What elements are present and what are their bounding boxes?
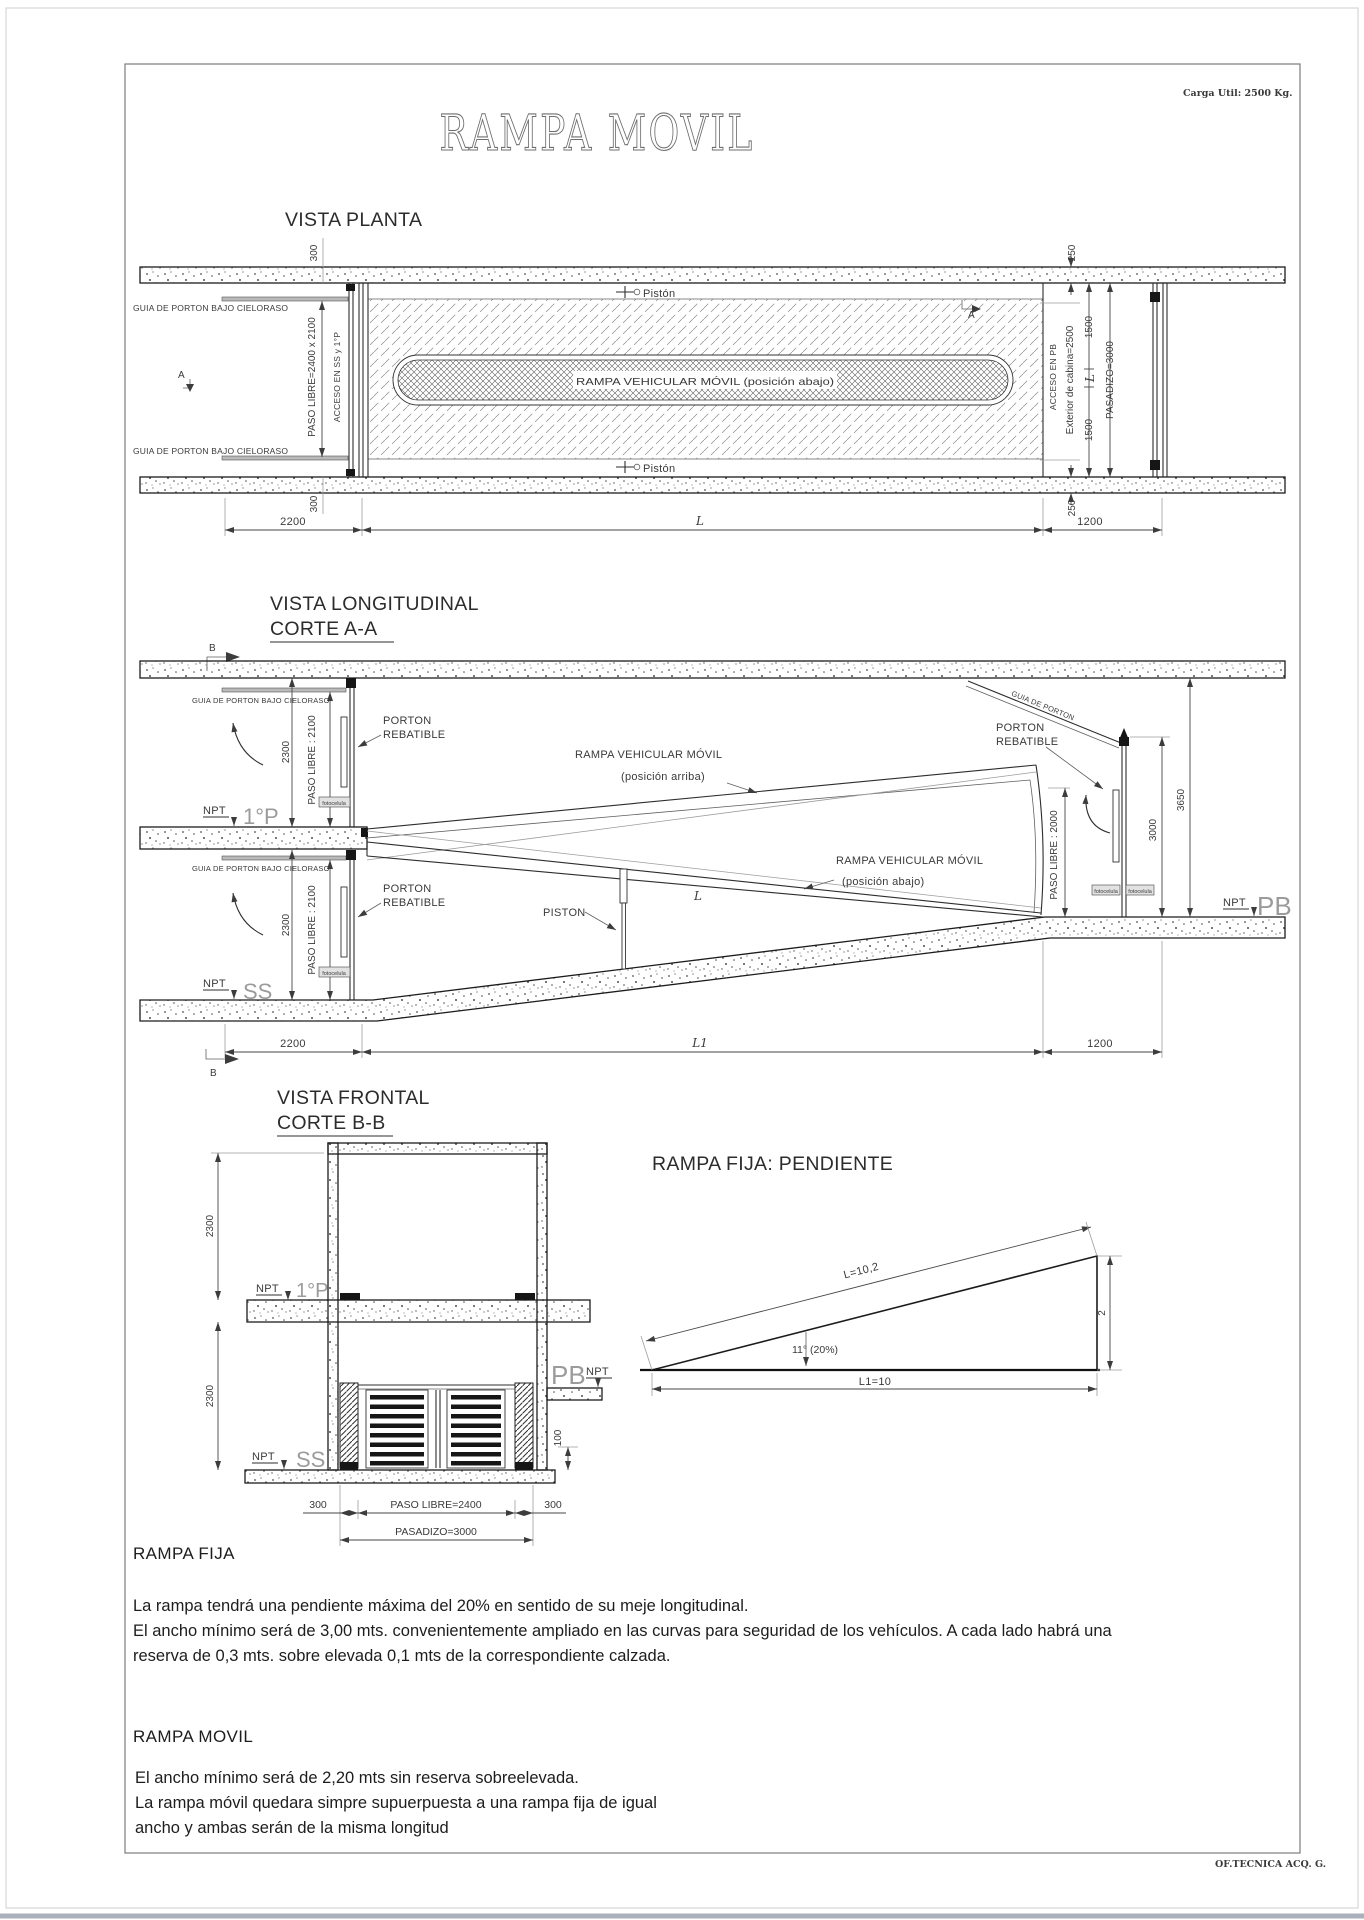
long-ramp-down-l2: (posición abajo) <box>842 876 924 888</box>
notes-movil-heading: RAMPA MOVIL <box>133 1727 253 1746</box>
long-ceiling-slab <box>140 661 1285 678</box>
plan-bottom-wall <box>140 477 1285 493</box>
long-swing-arrow-ss <box>233 893 263 935</box>
long-npt-1p: NPT <box>203 805 226 817</box>
longitudinal-title: VISTA LONGITUDINAL <box>270 593 479 615</box>
long-door-leaf-1p <box>341 717 347 787</box>
long-guia-1p-label: GUIA DE PORTON BAJO CIELORASO <box>192 696 330 705</box>
frontal-1p-slab <box>247 1300 590 1322</box>
frontal-level-ss: SS <box>296 1447 325 1472</box>
pendiente-title: RAMPA FIJA: PENDIENTE <box>652 1153 893 1175</box>
frontal-pasadizo: PASADIZO=3000 <box>395 1526 477 1538</box>
long-porton-1p-l2: REBATIBLE <box>383 729 445 741</box>
notes-fija-line-1: La rampa tendrá una pendiente máxima del… <box>133 1597 749 1615</box>
plan-dim-1500-top: 1500 <box>1084 315 1095 338</box>
plan-ramp-label: RAMPA VEHICULAR MÓVIL (posición abajo) <box>576 375 834 388</box>
long-mobile-ramp-down <box>367 842 1043 917</box>
long-dim-2200: 2200 <box>280 1038 306 1050</box>
main-title: RAMPA MOVIL <box>440 104 755 162</box>
plan-guide-rail-top <box>222 297 348 301</box>
long-porton-1p-l1: PORTON <box>383 715 431 727</box>
long-door-leaf-ss <box>341 887 347 957</box>
long-dim-l-ramp: L <box>693 889 702 903</box>
plan-title: VISTA PLANTA <box>285 209 422 231</box>
plan-right-door <box>1150 283 1167 477</box>
frontal-npt-1p: NPT <box>256 1283 279 1295</box>
long-level-1p: 1°P <box>243 804 279 829</box>
section-marker-b-bottom: B <box>206 1049 239 1079</box>
pendiente-angle-label: 11° (20%) <box>792 1344 838 1356</box>
frontal-ss-doors <box>340 1383 533 1470</box>
frontal-top-slab <box>328 1143 547 1154</box>
long-porton-ss-l2: REBATIBLE <box>383 897 445 909</box>
marker-b-bottom-label: B <box>210 1068 217 1079</box>
frontal-view: VISTA FRONTAL CORTE B-B <box>205 1087 612 1546</box>
long-dim-3000: 3000 <box>1148 818 1159 841</box>
plan-dim-300-bottom: 300 <box>309 495 320 512</box>
frontal-paso-libre: PASO LIBRE=2400 <box>390 1499 481 1511</box>
long-piston-label: PISTON <box>543 907 586 919</box>
plan-piston-bottom: Pistón <box>616 461 675 475</box>
drawing-page: Carga Util: 2500 Kg. RAMPA MOVIL VISTA P… <box>0 0 1364 1920</box>
long-door-leaf-pb <box>1113 790 1119 862</box>
frontal-dim-100: 100 <box>553 1429 564 1446</box>
long-dim-1200: 1200 <box>1087 1038 1113 1050</box>
longitudinal-view: VISTA LONGITUDINAL CORTE A-A B GUIA DE P… <box>140 593 1292 1079</box>
long-porton-pb-l2: REBATIBLE <box>996 736 1058 748</box>
long-guia-ss-label: GUIA DE PORTON BAJO CIELORASO <box>192 864 330 873</box>
frontal-npt-pb: NPT <box>586 1366 609 1378</box>
footer-office-label: OF.TECNICA ACQ. G. <box>1215 1859 1326 1870</box>
long-dim-3650: 3650 <box>1176 788 1187 811</box>
notes-block: RAMPA FIJA La rampa tendrá una pendiente… <box>133 1544 1113 1837</box>
notes-movil-line-1: El ancho mínimo será de 2,20 mts sin res… <box>135 1769 579 1787</box>
plan-guia-top-label: GUIA DE PORTON BAJO CIELORASO <box>133 303 288 313</box>
long-ramp-up-l1: RAMPA VEHICULAR MÓVIL <box>575 748 722 761</box>
carga-util-label: Carga Util: 2500 Kg. <box>1183 88 1293 99</box>
long-ramp-up-l2: (posición arriba) <box>621 771 705 783</box>
plan-dim-300-top: 300 <box>309 244 320 261</box>
plan-dim-250-bottom: 250 <box>1067 499 1078 516</box>
frontal-title: VISTA FRONTAL <box>277 1087 430 1109</box>
marker-a-left-label: A <box>178 370 185 381</box>
section-marker-a-left: A <box>178 370 194 392</box>
long-guide-rail-1p <box>222 688 346 692</box>
notes-movil-line-2: La rampa móvil quedara simpre supuerpues… <box>135 1794 657 1812</box>
long-piston-upper <box>620 869 627 903</box>
long-dim-l1: L1 <box>691 1036 708 1050</box>
plan-dim-2200: 2200 <box>280 516 306 528</box>
long-fotocelula-pb1-label: fotocelula <box>1094 889 1118 895</box>
long-npt-pb: NPT <box>1223 897 1246 909</box>
pendiente-diagram: RAMPA FIJA: PENDIENTE L=10,2 11° (20%) 2… <box>640 1153 1122 1396</box>
plan-exterior-cabina-label: Exterior de cabina=2500 <box>1065 325 1076 434</box>
plan-dim-l-mid: L <box>1083 374 1097 383</box>
notes-fija-line-2: El ancho mínimo será de 3,00 mts. conven… <box>133 1622 1113 1640</box>
long-fotocelula-1p-label: fotocelula <box>322 801 346 807</box>
marker-b-top-label: B <box>209 643 216 654</box>
frontal-dim-2300-top: 2300 <box>205 1214 216 1237</box>
frontal-subtitle: CORTE B-B <box>277 1112 386 1134</box>
longitudinal-subtitle: CORTE A-A <box>270 618 377 640</box>
plan-guia-bottom-label: GUIA DE PORTON BAJO CIELORASO <box>133 446 288 456</box>
frontal-level-pb: PB <box>551 1360 586 1390</box>
plan-pasadizo-label: PASADIZO=3000 <box>1105 341 1116 419</box>
long-fotocelula-pb2-label: fotocelula <box>1128 889 1152 895</box>
frontal-dim-300-left: 300 <box>309 1499 327 1511</box>
plan-view: VISTA PLANTA RAMPA VEHICULAR MÓVIL (posi… <box>133 209 1285 536</box>
plan-acceso-ss-label: ACCESO EN SS y 1°P <box>332 332 342 422</box>
long-ramp-down-l1: RAMPA VEHICULAR MÓVIL <box>836 854 983 867</box>
long-guide-rail-ss <box>222 856 346 860</box>
plan-top-wall <box>140 267 1285 283</box>
long-dim-2300-ss: 2300 <box>281 913 292 936</box>
long-porton-pb-l1: PORTON <box>996 722 1044 734</box>
long-porton-ss-l1: PORTON <box>383 883 431 895</box>
long-floor-1p <box>140 827 367 849</box>
plan-piston-top-label: Pistón <box>643 288 675 300</box>
frontal-npt-ss: NPT <box>252 1451 275 1463</box>
plan-guide-rail-bottom <box>222 456 348 460</box>
plan-dim-l-bottom: L <box>695 514 704 528</box>
long-dim-2300-1p: 2300 <box>281 740 292 763</box>
plan-piston-top: Pistón <box>616 286 675 300</box>
notes-movil-line-3: ancho y ambas serán de la misma longitud <box>135 1819 449 1837</box>
notes-fija-heading: RAMPA FIJA <box>133 1544 235 1563</box>
long-paso-2100-1p: PASO LIBRE : 2100 <box>307 715 318 805</box>
long-swing-arrow-1p <box>233 723 263 765</box>
technical-drawing: Carga Util: 2500 Kg. RAMPA MOVIL VISTA P… <box>0 0 1364 1920</box>
pendiente-hyp-label: L=10,2 <box>842 1261 880 1282</box>
pendiente-height-label: 2 <box>1097 1310 1108 1316</box>
long-paso-2100-ss: PASO LIBRE : 2100 <box>307 885 318 975</box>
long-paso-2000: PASO LIBRE : 2000 <box>1049 810 1060 900</box>
notes-fija-line-3: reserva de 0,3 mts. sobre elevada 0,1 mt… <box>133 1647 670 1665</box>
frontal-dim-300-right: 300 <box>544 1499 562 1511</box>
long-swing-arrow-pb <box>1086 795 1110 833</box>
long-npt-ss: NPT <box>203 978 226 990</box>
long-level-pb: PB <box>1257 891 1292 921</box>
long-mobile-ramp-up <box>367 765 1043 915</box>
plan-paso-libre-label: PASO LIBRE=2400 x 2100 <box>307 317 318 437</box>
long-piston-rod <box>622 903 626 969</box>
long-fotocelula-ss-label: fotocelula <box>322 971 346 977</box>
plan-piston-bottom-label: Pistón <box>643 463 675 475</box>
plan-acceso-pb-label: ACCESO EN PB <box>1048 344 1058 410</box>
frontal-bottom-slab <box>245 1470 555 1483</box>
plan-left-door <box>346 283 363 477</box>
pendiente-base-label: L1=10 <box>859 1376 891 1388</box>
plan-dim-1200: 1200 <box>1077 516 1103 528</box>
plan-dim-250-top: 250 <box>1067 244 1078 261</box>
frontal-level-1p: 1°P <box>296 1280 328 1302</box>
frontal-dim-2300-bottom: 2300 <box>205 1384 216 1407</box>
plan-dim-1500-bottom: 1500 <box>1084 418 1095 441</box>
